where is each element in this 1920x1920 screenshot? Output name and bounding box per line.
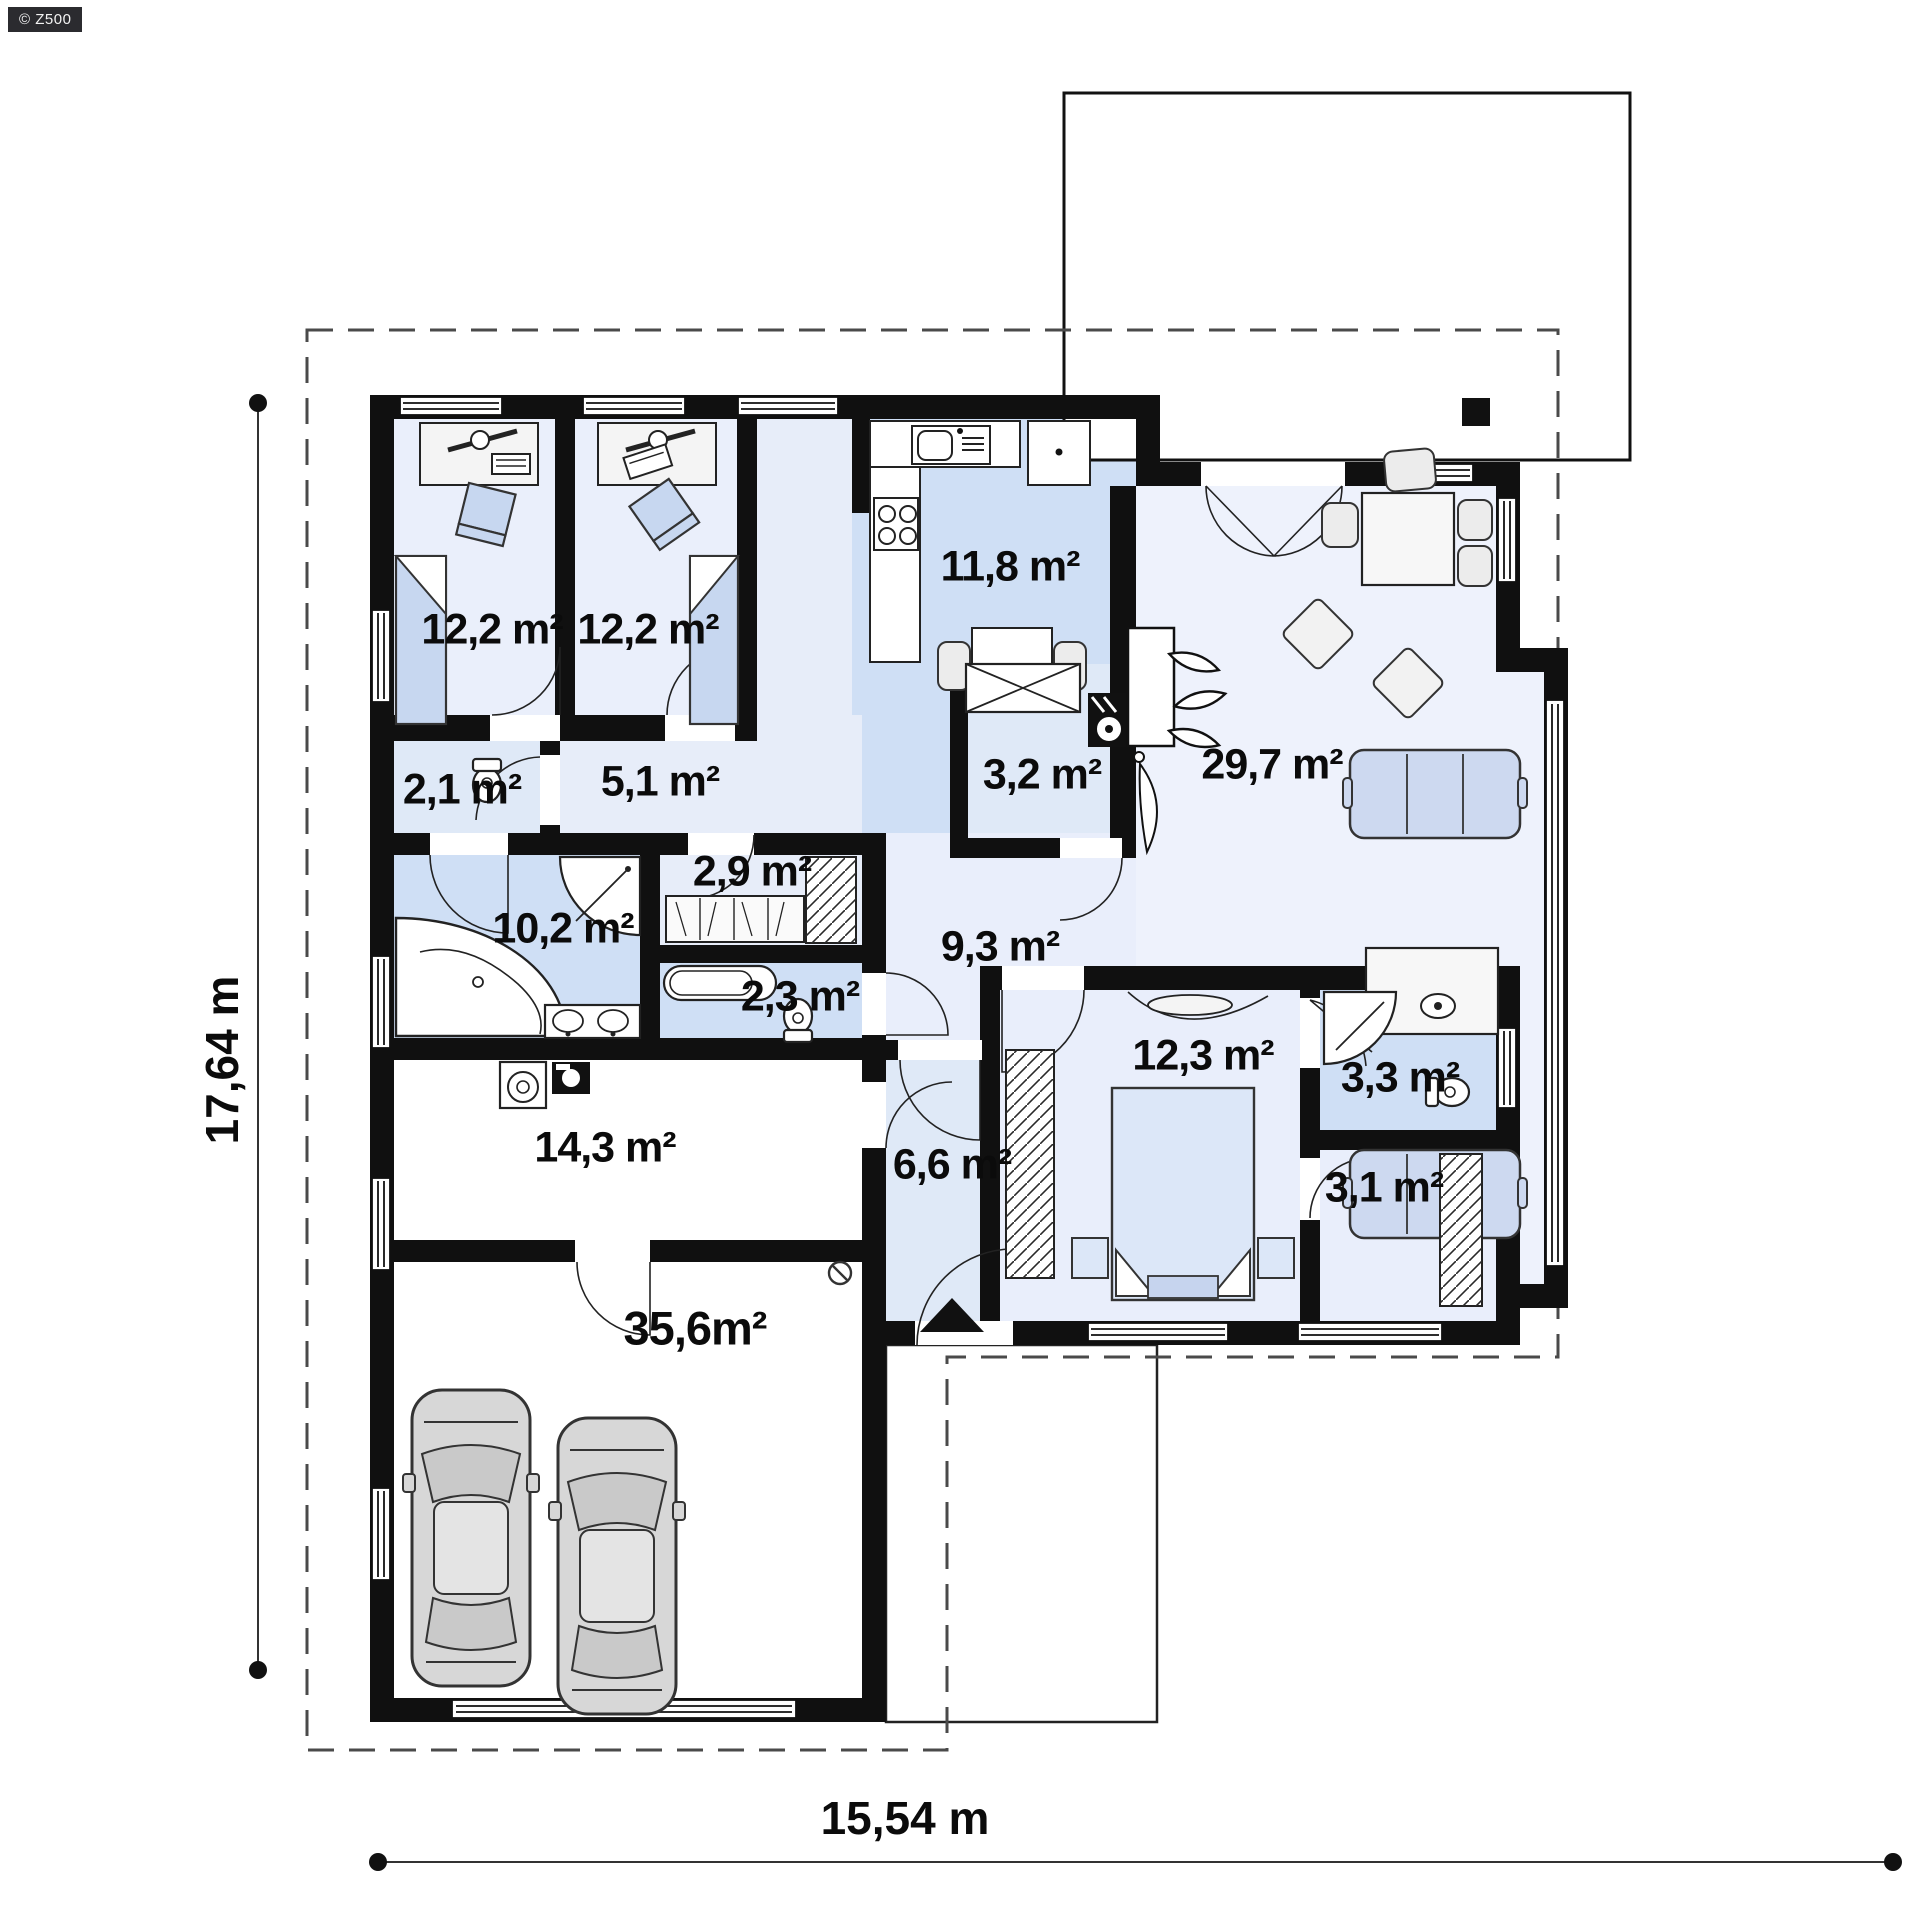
room-label-wc-small: 2,1 m² [403,766,521,815]
entrance-porch [886,1345,1157,1722]
room-label-living-room: 29,7 m² [1201,741,1342,790]
fireplace-icon [1128,628,1174,746]
car-icon [403,1390,539,1686]
room-label-hallway: 5,1 m² [601,758,719,807]
car-icon [549,1418,685,1714]
dimension-line-horizontal [369,1853,1902,1871]
room-label-bathroom-en-suite: 3,3 m² [1341,1054,1459,1103]
room-label-bedroom-3: 12,3 m² [1132,1032,1273,1081]
room-label-hall-central: 9,3 m² [941,923,1059,972]
floor-plan-page: © Z500 12,2 m² 12,2 m² 11,8 m² 2,1 m² 5,… [0,0,1920,1920]
room-label-wardrobe-hall: 2,9 m² [693,848,811,897]
room-label-pantry: 3,2 m² [983,751,1101,800]
room-label-entrance-hall: 6,6 m² [893,1141,1011,1190]
terrace-pillar [1462,398,1490,426]
sink-icon [918,431,952,460]
sofa-icon [1343,750,1527,838]
room-label-bathroom-main: 10,2 m² [492,905,633,954]
watermark-badge: © Z500 [8,7,82,32]
dimension-width-label: 15,54 m [821,1791,990,1845]
double-bed-icon [1112,1088,1254,1300]
room-label-garage: 35,6m² [624,1301,767,1356]
dining-table [1362,493,1454,585]
room-label-bedroom-1: 12,2 m² [421,606,562,655]
room-label-bedroom-2: 12,2 m² [577,606,718,655]
wardrobe-bedroom-furniture [1440,1154,1482,1306]
dimension-height-label: 17,64 m [195,976,249,1145]
room-label-kitchen: 11,8 m² [941,543,1080,592]
built-in-wardrobe-icon [1006,1050,1054,1278]
room-label-bathroom-small: 2,3 m² [741,973,859,1022]
dimension-line-vertical [249,394,267,1679]
room-label-wardrobe-bedroom: 3,1 m² [1325,1164,1443,1213]
shelves-icon [1440,1154,1482,1306]
double-sink-icon [545,1005,640,1038]
room-label-utility-room: 14,3 m² [534,1124,675,1173]
